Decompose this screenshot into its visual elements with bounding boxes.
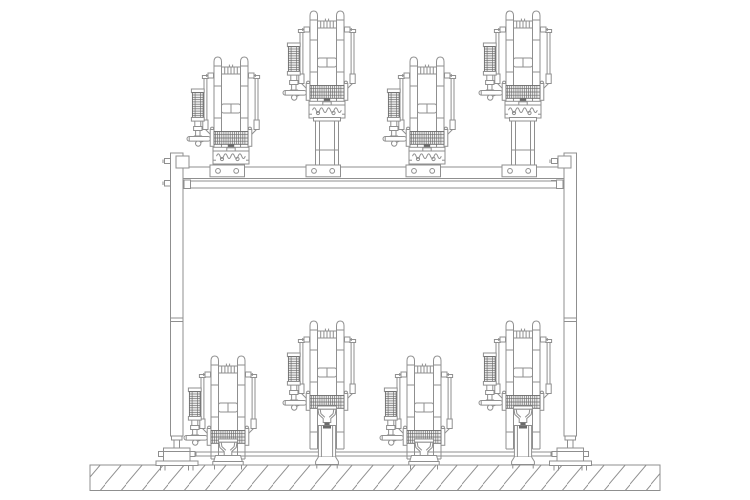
- tie-rod: [196, 452, 551, 456]
- cad-drawing-page: Technical side-elevation drawing: gantry…: [0, 0, 750, 500]
- right-post-cap: [558, 156, 571, 168]
- left-post-bolt-lower: [165, 181, 171, 187]
- left-foot: [156, 436, 198, 471]
- right-foot: [550, 436, 592, 471]
- bottom-units: [184, 321, 552, 470]
- left-post-bolt-upper: [165, 159, 171, 164]
- frame-right-post: [550, 153, 592, 471]
- clamp-unit-top-2: [283, 11, 356, 177]
- clamp-unit-top-4: [479, 11, 552, 177]
- clamp-unit-top-3: [383, 57, 456, 177]
- cad-drawing-canvas: Technical side-elevation drawing: gantry…: [0, 0, 750, 500]
- ground: [90, 465, 660, 491]
- ground-hatch-band: [90, 465, 660, 491]
- top-units: [187, 11, 552, 177]
- clamp-unit-top-1: [187, 57, 260, 177]
- left-post-cap: [176, 156, 189, 168]
- rail-end-left: [184, 180, 191, 189]
- clamp-unit-bottom-2: [283, 321, 356, 469]
- rail-end-right: [557, 180, 564, 189]
- clamp-unit-bottom-4: [479, 321, 552, 469]
- secondary-rail: [186, 181, 561, 188]
- right-post-bolt-upper: [552, 159, 558, 164]
